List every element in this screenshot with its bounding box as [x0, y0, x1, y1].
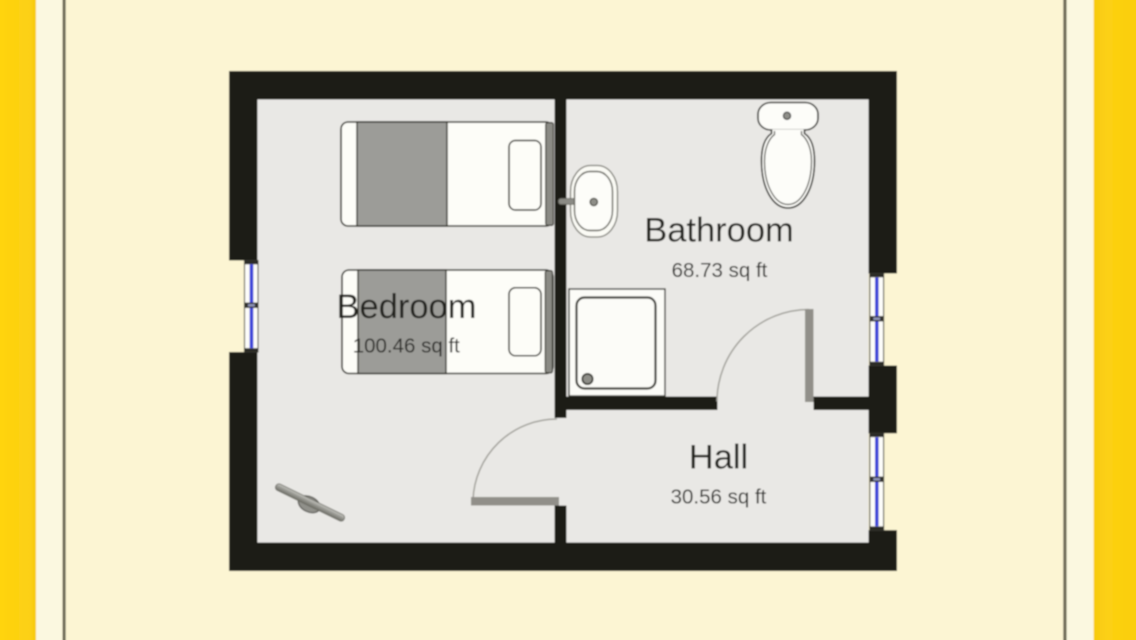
svg-text:Bedroom: Bedroom [337, 288, 477, 326]
svg-text:Bathroom: Bathroom [644, 212, 794, 250]
svg-text:68.73 sq ft: 68.73 sq ft [672, 259, 768, 282]
svg-text:100.46 sq ft: 100.46 sq ft [353, 335, 460, 358]
svg-text:Hall: Hall [689, 439, 748, 477]
svg-text:30.56 sq ft: 30.56 sq ft [671, 486, 767, 509]
